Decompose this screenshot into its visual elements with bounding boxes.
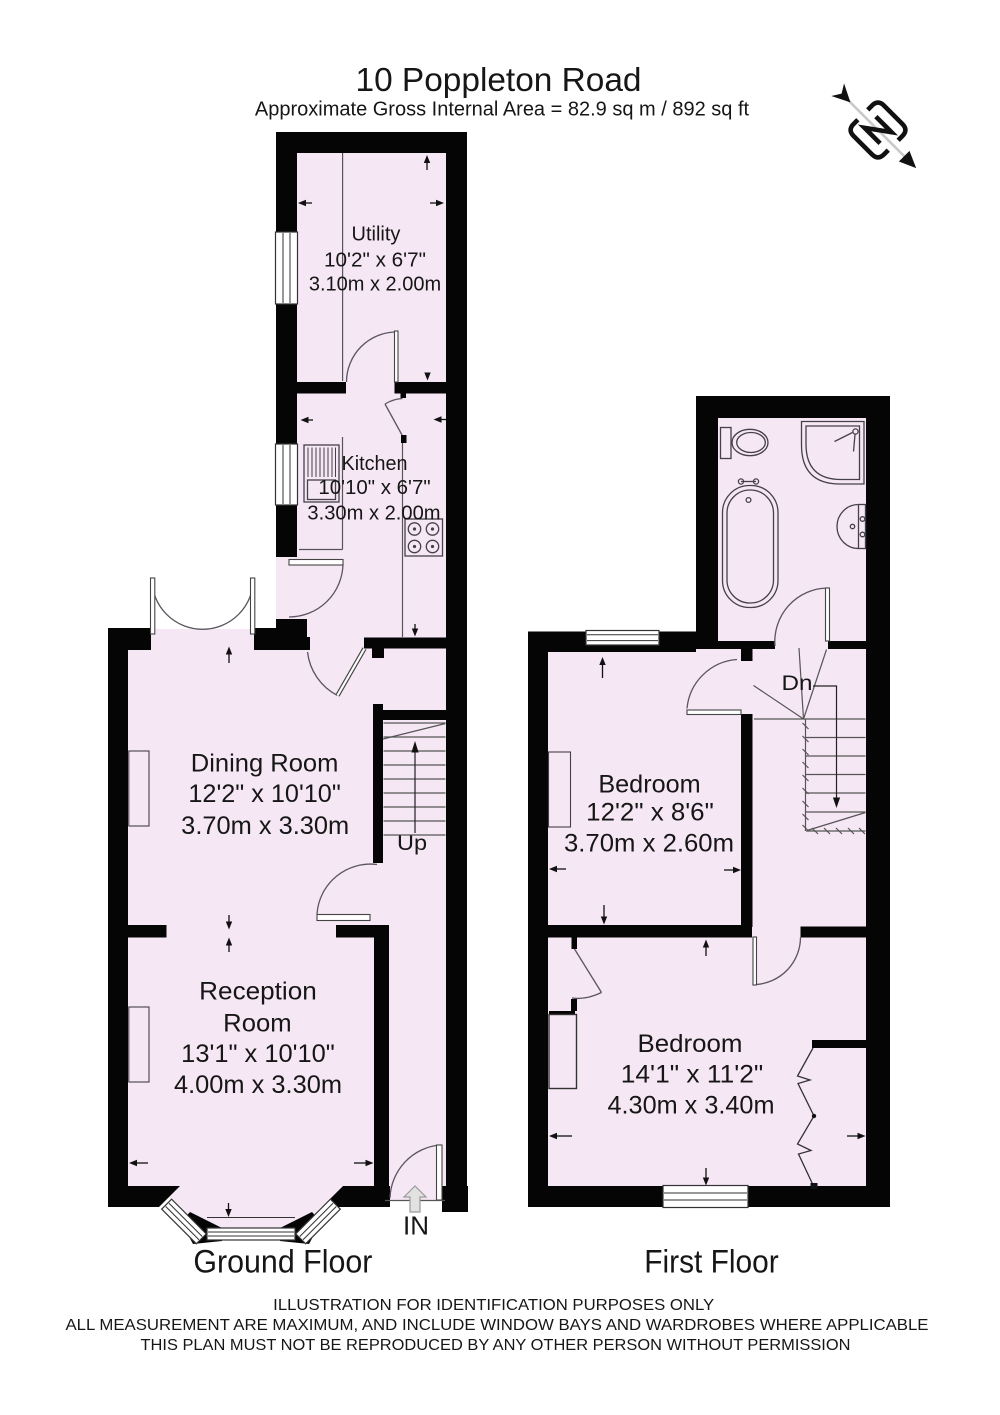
svg-text:Room: Room <box>223 1010 291 1038</box>
svg-text:IN: IN <box>403 1211 429 1241</box>
svg-text:Approximate Gross Internal Are: Approximate Gross Internal Area = 82.9 s… <box>255 99 750 121</box>
svg-text:4.00m x 3.30m: 4.00m x 3.30m <box>174 1071 342 1099</box>
svg-text:3.70m x 3.30m: 3.70m x 3.30m <box>181 812 349 840</box>
svg-text:THIS PLAN MUST NOT BE REPRODUC: THIS PLAN MUST NOT BE REPRODUCED BY ANY … <box>141 1337 851 1354</box>
svg-text:Bedroom: Bedroom <box>598 771 700 799</box>
svg-text:13'1" x 10'10": 13'1" x 10'10" <box>181 1040 335 1068</box>
svg-text:10'10" x 6'7": 10'10" x 6'7" <box>318 477 430 499</box>
svg-text:Ground Floor: Ground Floor <box>193 1243 372 1279</box>
svg-text:ILLUSTRATION FOR IDENTIFICATIO: ILLUSTRATION FOR IDENTIFICATION PURPOSES… <box>273 1297 714 1314</box>
svg-text:3.70m x 2.60m: 3.70m x 2.60m <box>564 830 734 858</box>
svg-text:4.30m x 3.40m: 4.30m x 3.40m <box>608 1092 775 1120</box>
svg-text:10'2" x 6'7": 10'2" x 6'7" <box>324 250 426 272</box>
svg-text:Dining Room: Dining Room <box>191 750 339 778</box>
svg-text:12'2" x 8'6": 12'2" x 8'6" <box>586 799 714 827</box>
svg-text:Up: Up <box>397 832 427 855</box>
svg-text:14'1" x 11'2": 14'1" x 11'2" <box>621 1061 764 1089</box>
svg-text:12'2" x 10'10": 12'2" x 10'10" <box>188 780 340 808</box>
svg-text:10 Poppleton Road: 10 Poppleton Road <box>356 62 642 99</box>
svg-text:ALL MEASUREMENT ARE MAXIMUM,: ALL MEASUREMENT ARE MAXIMUM, AND INCLUDE… <box>66 1317 929 1334</box>
svg-text:3.30m x 2.00m: 3.30m x 2.00m <box>307 503 440 525</box>
svg-text:Dn: Dn <box>782 672 813 695</box>
svg-text:Kitchen: Kitchen <box>342 453 408 475</box>
svg-text:First Floor: First Floor <box>644 1243 779 1279</box>
svg-text:Utility: Utility <box>352 224 401 246</box>
svg-text:3.10m x 2.00m: 3.10m x 2.00m <box>309 274 441 296</box>
svg-text:Reception: Reception <box>199 978 317 1006</box>
svg-text:Bedroom: Bedroom <box>638 1030 743 1058</box>
